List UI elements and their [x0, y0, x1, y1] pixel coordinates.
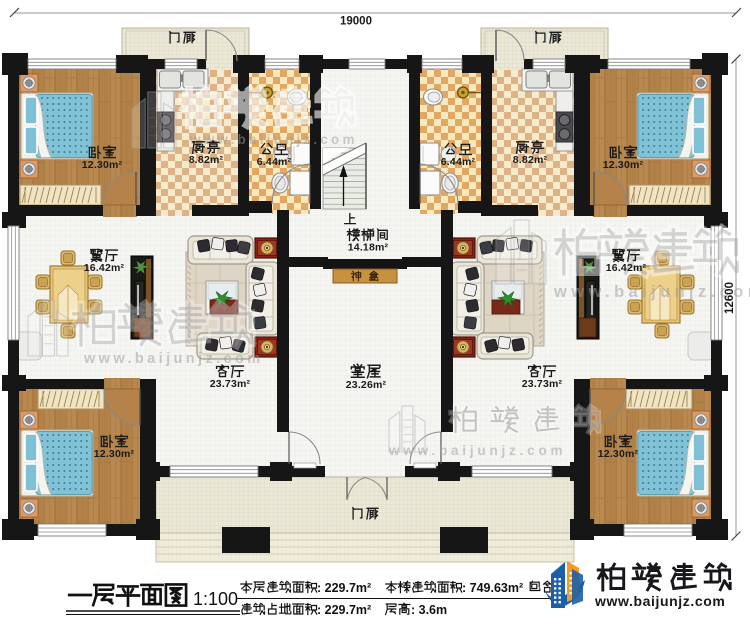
- svg-text:8.82m²: 8.82m²: [189, 154, 224, 166]
- svg-text:23.73m²: 23.73m²: [210, 378, 251, 390]
- svg-text:: 229.7m²: : 229.7m²: [317, 603, 371, 617]
- svg-text:16.42m²: 16.42m²: [84, 262, 125, 274]
- svg-text:: 3.6m: : 3.6m: [411, 603, 447, 617]
- svg-text:www.baijunjz.com: www.baijunjz.com: [594, 593, 725, 609]
- svg-text:www.baijunjz.com: www.baijunjz.com: [83, 351, 264, 367]
- svg-text:23.73m²: 23.73m²: [522, 378, 563, 390]
- svg-text:12600: 12600: [724, 282, 736, 314]
- svg-text:19000: 19000: [340, 16, 372, 28]
- svg-text:6.44m²: 6.44m²: [257, 156, 292, 168]
- svg-text:1:100: 1:100: [193, 589, 238, 609]
- svg-text:: 229.7m²: : 229.7m²: [317, 581, 371, 595]
- svg-text:14.18m²: 14.18m²: [348, 241, 389, 253]
- svg-text:12.30m²: 12.30m²: [82, 159, 123, 171]
- svg-text:www.baijunjz.com: www.baijunjz.com: [189, 132, 358, 147]
- svg-text:www.baijunjz.com: www.baijunjz.com: [388, 443, 566, 458]
- svg-text:6.44m²: 6.44m²: [441, 156, 476, 168]
- svg-text:12.30m²: 12.30m²: [603, 159, 644, 171]
- svg-text:23.26m²: 23.26m²: [346, 379, 387, 391]
- svg-text:: 749.63m²: : 749.63m²: [462, 581, 523, 595]
- svg-text:12.30m²: 12.30m²: [598, 448, 639, 460]
- svg-text:www.baijunjz.com: www.baijunjz.com: [553, 283, 750, 301]
- svg-text:8.82m²: 8.82m²: [513, 154, 548, 166]
- svg-text:16.42m²: 16.42m²: [606, 262, 647, 274]
- svg-text:12.30m²: 12.30m²: [94, 448, 135, 460]
